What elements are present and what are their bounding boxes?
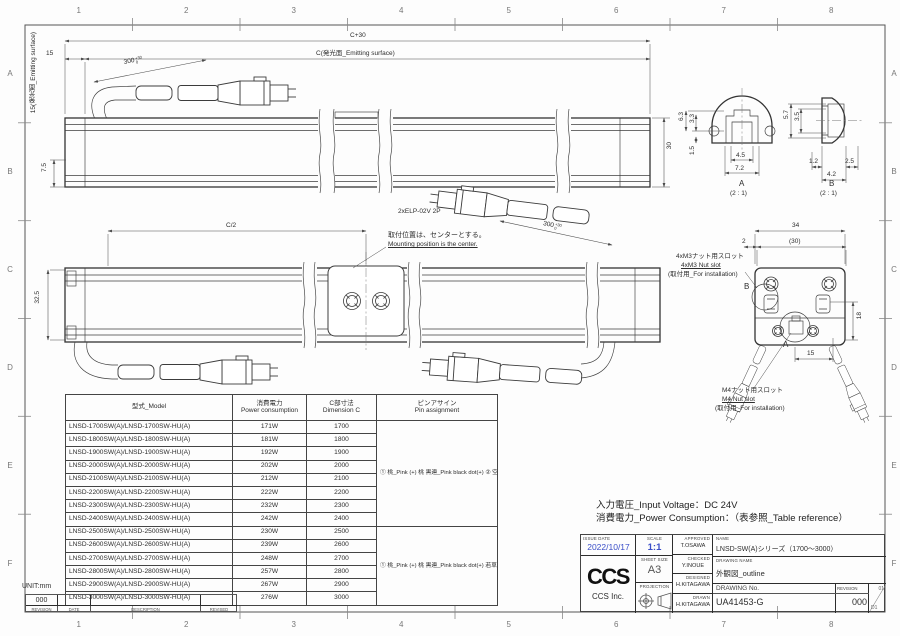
label-emitting-surface-height: 15(発光面_Emitting surface) [30,32,38,113]
header-pin: ピンアサインPin assignment [377,395,498,421]
label-m4-slot-en: M4 Nut slot [722,396,755,404]
power-cell: 222W [233,486,307,499]
note-input-voltage: 入力電圧_Input Voltage：DC 24V [596,499,848,512]
checked-label: CHECKED [688,556,710,561]
dimension-cell: 2600 [307,539,377,552]
revision-cell: REVISION 000 [836,584,869,613]
drawing-name-label: DRAWING NAME [716,558,753,563]
drawing-name-cell: DRAWING NAME 外観図_outline [713,557,886,584]
section-b [788,98,864,183]
power-cell: 192W [233,447,307,460]
dimension-cell: 2800 [307,566,377,579]
dimension-cell: 2000 [307,460,377,473]
drawing-sheet: 12345678 12345678 ABCDEF ABCDEF [0,0,900,636]
power-cell: 232W [233,500,307,513]
power-cell: 248W [233,552,307,565]
header-model: 型式_Model [66,395,233,421]
dimension-cell: 1700 [307,421,377,434]
label-m4-slot-jp: M4ナット用スロット [722,387,783,395]
ccs-logo: CCS [581,564,635,590]
dim-b-2-5: 2.5 [845,158,854,166]
header-dimension: C部寸法Dimension C [307,395,377,421]
projection-label: PROJECTION [636,584,673,589]
dimension-cell: 2500 [307,526,377,539]
title-block: ISSUE DATE 2022/10/17 CCS CCS Inc. SCALE… [580,534,885,612]
pin-assignment-cell: ① 桃_Pink (+) 桃 黒連_Pink black dot(+) 若草_L… [377,526,498,605]
dim-end-15: 15 [807,350,814,358]
label-m3-slot-note: (取付用_For installation) [668,271,738,279]
revision-strip-date [58,595,91,606]
drawing-no-label: DRAWING No. [716,585,759,592]
table-row: LNSD-2500SW(A)/LNSD-2500SW-HU(A)230W2500… [66,526,498,539]
sheet-size-value: A3 [636,564,673,576]
section-a [686,88,775,176]
section-b-label: B [829,180,834,188]
revision-strip-header: REVISED [201,606,237,612]
revision-strip-header: DESCRIPTION [91,606,201,612]
model-cell: LNSD-2700SW(A)/LNSD-2700SW-HU(A) [66,552,233,565]
dim-overall-length: C+30 [350,32,366,40]
dim-7-5: 7.5 [41,163,49,172]
model-cell: LNSD-1700SW(A)/LNSD-1700SW-HU(A) [66,421,233,434]
power-cell: 239W [233,539,307,552]
note-mounting-jp: 取付位置は、センターとする。 [388,232,486,240]
dim-a-7-2: 7.2 [735,165,744,173]
scale-value: 1:1 [636,542,673,553]
power-cell: 171W [233,421,307,434]
designed-value: H.KITAGAWA [673,582,713,588]
sheet-corner-top: 01 [878,586,884,592]
notes: 入力電圧_Input Voltage：DC 24V 消費電力_Power Con… [596,499,848,525]
revision-value: 000 [836,597,867,607]
designed-cell: DESIGNED H.KITAGAWA [673,574,713,594]
name-label: NAME [716,536,729,541]
name-cell: NAME LNSD-SW(A)シリーズ（1700～3000） [713,535,886,557]
table-row: LNSD-1700SW(A)/LNSD-1700SW-HU(A)171W1700… [66,421,498,434]
view-side [50,41,670,245]
section-b-scale: (2 : 1) [820,190,837,198]
dimension-cell: 1800 [307,434,377,447]
drawing-name-value: 外観図_outline [716,568,765,579]
drawing-no-value: UA41453-G [716,597,764,607]
model-cell: LNSD-2800SW(A)/LNSD-2800SW-HU(A) [66,566,233,579]
power-cell: 202W [233,460,307,473]
dim-end-18: 18 [856,312,864,319]
sheet-corner-bottom: D1 [871,605,877,611]
projection-cell: PROJECTION [636,583,673,613]
table-header-row: 型式_Model 消費電力Power consumption C部寸法Dimen… [66,395,498,421]
dim-b-1-2: 1.2 [809,158,818,166]
ccs-logo-caption: CCS Inc. [581,592,635,601]
dim-end-34: 34 [792,222,799,230]
dimension-cell: 3000 [307,592,377,605]
header-power: 消費電力Power consumption [233,395,307,421]
pin-assignment-cell: ① 桃_Pink (+) 桃 黒連_Pink black dot(+) ② 空_… [377,421,498,527]
checked-cell: CHECKED Y.INOUE [673,555,713,575]
unit-label: UNIT:mm [22,583,51,590]
scale-cell: SCALE 1:1 [636,535,673,556]
drawn-value: H.KITAGAWA [673,602,713,608]
model-cell: LNSD-2300SW(A)/LNSD-2300SW-HU(A) [66,500,233,513]
dim-b-3-5: 3.5 [794,112,802,121]
revision-strip-revised [201,595,237,606]
power-cell: 276W [233,592,307,605]
sheet-size-cell: SHEET SIZE A3 [636,556,673,583]
issue-date-value: 2022/10/17 [581,542,636,552]
model-cell: LNSD-2100SW(A)/LNSD-2100SW-HU(A) [66,473,233,486]
dimension-cell: 2100 [307,473,377,486]
dimension-cell: 2300 [307,500,377,513]
scale-label: SCALE [636,536,673,541]
dimension-cell: 2400 [307,513,377,526]
dim-32-5: 32.5 [34,291,42,304]
power-cell: 230W [233,526,307,539]
checked-value: Y.INOUE [673,563,713,569]
model-table: 型式_Model 消費電力Power consumption C部寸法Dimen… [65,394,498,606]
model-cell: LNSD-1900SW(A)/LNSD-1900SW-HU(A) [66,447,233,460]
dim-b-5-7: 5.7 [783,110,791,119]
revision-strip-desc [91,595,201,606]
view-end-dimensions [744,231,858,362]
dimension-cell: 2900 [307,579,377,592]
designed-label: DESIGNED [686,575,710,580]
model-cell: LNSD-2600SW(A)/LNSD-2600SW-HU(A) [66,539,233,552]
dimension-cell: 2200 [307,486,377,499]
revision-label: REVISION [837,586,858,591]
issue-date-cell: ISSUE DATE 2022/10/17 [581,535,636,556]
dim-emitting-length: C(発光面_Emitting surface) [316,50,395,58]
model-cell: LNSD-2200SW(A)/LNSD-2200SW-HU(A) [66,486,233,499]
drawn-cell: DRAWN H.KITAGAWA [673,594,713,614]
power-cell: 181W [233,434,307,447]
note-power-consumption: 消費電力_Power Consumption：（表参照_Table refere… [596,512,848,525]
section-a-scale: (2 : 1) [730,190,747,198]
power-cell: 267W [233,579,307,592]
dim-height-30: 30 [666,142,674,149]
dimension-cell: 1900 [307,447,377,460]
dim-a-3-3: 3.3 [689,114,697,123]
revision-strip-header: REVISION [26,606,58,612]
dim-a-6-3: 6.3 [678,112,686,121]
dimension-cell: 2700 [307,552,377,565]
drawn-label: DRAWN [693,595,710,600]
label-connector-type: 2xELP-02V 2P [398,208,441,216]
power-cell: 212W [233,473,307,486]
issue-date-label: ISSUE DATE [583,536,610,541]
dim-offset-15: 15 [46,50,53,58]
logo-cell: CCS CCS Inc. [581,556,636,613]
dim-end-2: 2 [742,238,746,246]
dim-a-4-5: 4.5 [736,152,745,160]
drawing-no-cell: DRAWING No. UA41453-G [713,584,836,613]
series-name: LNSD-SW(A)シリーズ（1700～3000） [716,544,837,554]
dim-b-4-2: 4.2 [827,171,836,179]
model-cell: LNSD-2900SW(A)/LNSD-2900SW-HU(A) [66,579,233,592]
label-m3-slot-en: 4xM3 Nut slot [681,262,721,270]
model-cell: LNSD-2400SW(A)/LNSD-2400SW-HU(A) [66,513,233,526]
sheet-corner-cell: 01 D1 [869,584,886,613]
model-cell: LNSD-2000SW(A)/LNSD-2000SW-HU(A) [66,460,233,473]
approved-label: APPROVED [685,536,710,541]
label-m3-slot-jp: 4xM3ナット用スロット [676,253,744,261]
section-a-label: A [739,180,744,188]
model-cell: LNSD-2500SW(A)/LNSD-2500SW-HU(A) [66,526,233,539]
dim-end-30ref: (30) [789,238,801,246]
sheet-size-label: SHEET SIZE [636,557,673,562]
note-mounting-en: Mounting position is the center. [388,241,478,249]
power-cell: 242W [233,513,307,526]
view-top [48,231,660,390]
revision-strip-value: 000 [26,595,58,606]
detail-b-marker: B [744,283,749,291]
label-m4-slot-note: (取付用_For installation) [715,405,785,413]
detail-a-marker: A [783,341,788,349]
dim-a-1-5: 1.5 [689,146,697,155]
power-cell: 257W [233,566,307,579]
dim-c-half: C/2 [226,222,236,230]
approved-value: T.OSAWA [673,543,713,549]
model-cell: LNSD-1800SW(A)/LNSD-1800SW-HU(A) [66,434,233,447]
approved-cell: APPROVED T.OSAWA [673,535,713,555]
revision-strip: 000 REVISIONDATEDESCRIPTIONREVISED [25,594,237,612]
revision-strip-header: DATE [58,606,91,612]
projection-icon [638,592,672,610]
